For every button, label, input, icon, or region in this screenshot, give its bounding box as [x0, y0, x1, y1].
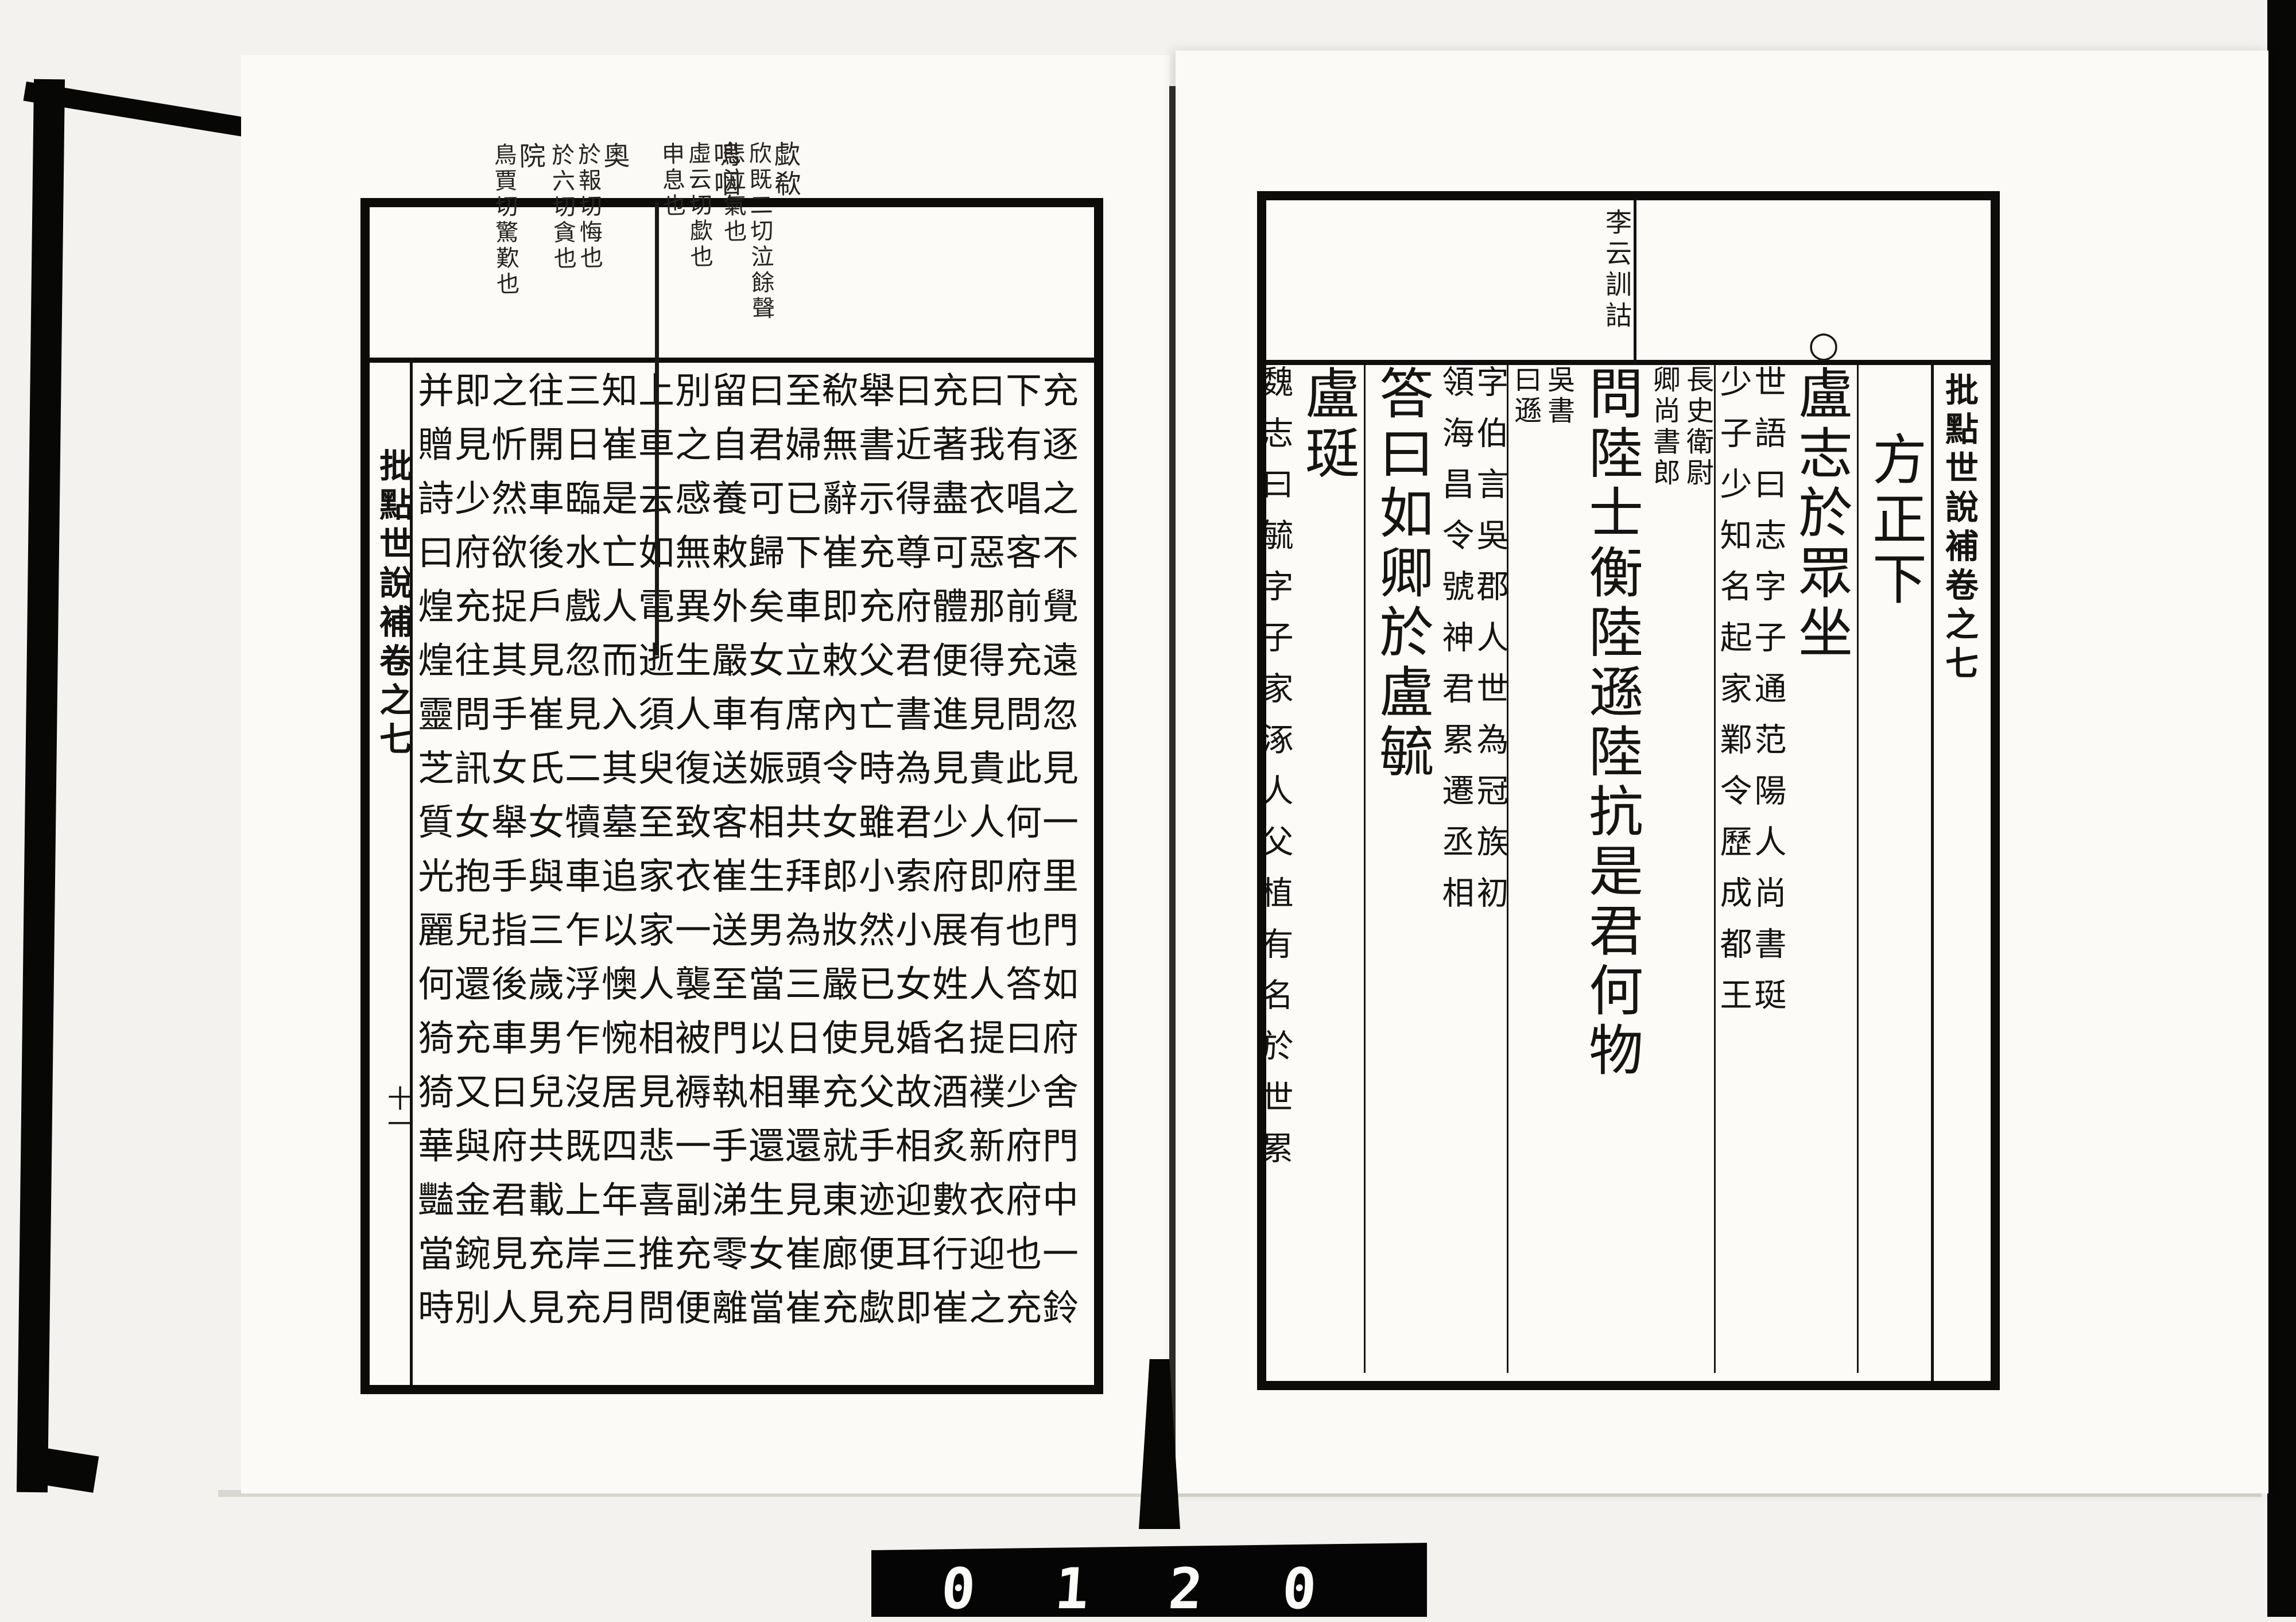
text-column: 曰君可歸矣女有娠相生男當以相還生女當 [745, 371, 782, 1377]
commentary-dual-column: 長史衛尉卿尚書郎 [1647, 365, 1714, 1373]
scan-edge-bar-left [17, 79, 65, 1492]
text-column: 字伯言吳郡人世為冠族初領海昌令號神君累遷丞相答曰如卿於盧毓 [1364, 365, 1507, 1373]
commentary-dual-column: 字伯言吳郡人世為冠族初領海昌令號神君累遷丞相 [1438, 365, 1507, 1373]
commentary-sub-column: 卿尚書郎 [1647, 365, 1681, 1373]
commentary-sub-column: 少子少知名起家鄴令歷成都王 [1716, 365, 1750, 1373]
left-banxin-title: 批點世說補卷之七 [373, 448, 413, 760]
text-column: 知崔是亡人而入其墓追以懊惋居四年三月 [598, 371, 635, 1377]
commentary-sub-column: 長史衛尉 [1681, 365, 1714, 1373]
commentary-sub-column: 吳書 [1542, 365, 1575, 1373]
text-column: 往開車後戶見崔氏女與三歲男兒共載充見 [525, 371, 561, 1377]
margin-gloss-annotation: 院鳥賈切驚歎也 [490, 142, 550, 413]
text-column: 欷無辭崔即敕內令女郎妝嚴使充就東廊充 [819, 371, 855, 1377]
right-margin-annotation: 李云訓詁 [1598, 208, 1636, 332]
text-column: 曰我衣惡那得見貴人即有人提襆新衣迎之 [965, 371, 1002, 1377]
main-text: 答曰如卿於盧毓 [1366, 365, 1438, 1373]
commentary-sub-column: 魏志曰毓字子家涿人父植有名於世累 [1257, 365, 1291, 1373]
commentary-sub-column: 字伯言吳郡人世為冠族初 [1472, 365, 1507, 1373]
gloss-text-column: 虛云切歔也 [684, 141, 716, 389]
text-column: 長史衛尉卿尚書郎問陸士衡陸遜陸抗是君何物吳書曰遜 [1507, 365, 1714, 1373]
text-column: 并贈詩曰煌煌靈芝質光麗何猗猗華豔當時 [414, 371, 451, 1377]
text-column: 曰近得尊府君書為君索小女婚故相迎耳即 [892, 371, 929, 1377]
gloss-headword: 奧 [600, 142, 634, 383]
gloss-headword: 院 [516, 142, 550, 412]
commentary-sub-column: 領海昌令號神君累遷丞相 [1438, 365, 1472, 1373]
gloss-headword: 嗚咽 [710, 141, 744, 388]
text-column: 舉書示充充父亡時雖小然已見父手迹便歔 [855, 371, 892, 1377]
text-column: 即見少府充往問訊女抱兒還充又與金鋺別 [451, 371, 488, 1377]
film-counter-bar: 0 1 2 0 [871, 1543, 1427, 1617]
gloss-text-column: 申息也 [658, 142, 689, 389]
left-leaf-number: 十一 [379, 1085, 416, 1136]
section-circle-mark: ○ [1808, 323, 1839, 365]
text-column: 上車去如電逝須臾至家家人相見悲喜推問 [635, 371, 672, 1377]
commentary-dual-column: 魏志曰毓字子家涿人父植有名於世累遷吏部郎尚書選舉先性行而後言才進 [1257, 365, 1291, 1373]
text-column: 至婦已下車立席頭共拜為三日畢還見崔崔 [782, 371, 819, 1377]
commentary-sub-column: 曰遜 [1508, 365, 1542, 1373]
text-column: 充逐之不覺遠忽見一里門如府舍門中一鈴 [1039, 371, 1076, 1377]
text-column: 盧志於眾坐世語曰志字子通范陽人尚書珽少子少知名起家鄴令歷成都王 [1714, 365, 1857, 1373]
gloss-headword: 歔欷 [771, 141, 805, 411]
book-gutter-shadow [1169, 86, 1176, 1510]
gloss-text-column: 鳥賈切驚歎也 [490, 142, 522, 413]
text-column: 下有唱客前充問此何府也答曰少府府也充 [1002, 371, 1039, 1377]
text-column: 別之感無異生人復致衣一襲被褥一副充便 [672, 371, 708, 1377]
margin-annotation-stroke [655, 202, 659, 655]
main-text: 問陸士衡陸遜陸抗是君何物 [1575, 365, 1647, 1373]
text-column: 三日臨水戲忽見二犢車乍浮乍沒既上岸充 [561, 371, 598, 1377]
right-page-margin-rule [1266, 360, 1991, 365]
right-page-frame: 批點世說補卷之七 李云訓詁 ○ 方正下盧志於眾坐世語曰志字子通范陽人尚書珽少子少… [1257, 191, 2000, 1390]
commentary-dual-column: 吳書曰遜 [1508, 365, 1575, 1373]
main-text: 方正下 [1859, 365, 1931, 1373]
right-text-block: 方正下盧志於眾坐世語曰志字子通范陽人尚書珽少子少知名起家鄴令歷成都王長史衛尉卿尚… [1274, 365, 1931, 1373]
right-banxin-divider [1931, 360, 1934, 1381]
text-column: 之忻然欲捉其手女舉手指後車曰府君見人 [488, 371, 525, 1377]
main-text: 盧志於眾坐 [1785, 365, 1857, 1373]
margin-gloss-annotation: 奧於報切悔也於六切貪也 [548, 142, 634, 385]
gloss-text-column: 於報切悔也 [574, 142, 606, 384]
margin-gloss-annotation: 嗚咽虛云切歔也申息也 [658, 141, 744, 389]
scan-edge-strip-right [2267, 0, 2296, 1617]
main-text: 盧珽 [1291, 365, 1364, 1373]
text-column: 方正下 [1857, 365, 1931, 1373]
film-counter-digits: 0 1 2 0 [939, 1557, 1341, 1622]
right-banxin-title: 批點世說補卷之七 [1939, 372, 1979, 685]
text-column: 盧珽魏志曰毓字子家涿人父植有名於世累遷吏部郎尚書選舉先性行而後言才進 [1257, 365, 1364, 1373]
gloss-text-column: 於六切貪也 [548, 143, 579, 385]
commentary-dual-column: 世語曰志字子通范陽人尚書珽少子少知名起家鄴令歷成都王 [1716, 365, 1785, 1373]
text-column: 留自養敕外嚴車送客崔送至門執手涕零離 [708, 371, 745, 1377]
left-text-block: 充逐之不覺遠忽見一里門如府舍門中一鈴下有唱客前充問此何府也答曰少府府也充曰我衣惡… [414, 371, 1076, 1377]
commentary-sub-column: 世語曰志字子通范陽人尚書珽 [1750, 365, 1785, 1373]
text-column: 充著盡可體便進見少府展姓名酒炙數行崔 [929, 371, 965, 1377]
